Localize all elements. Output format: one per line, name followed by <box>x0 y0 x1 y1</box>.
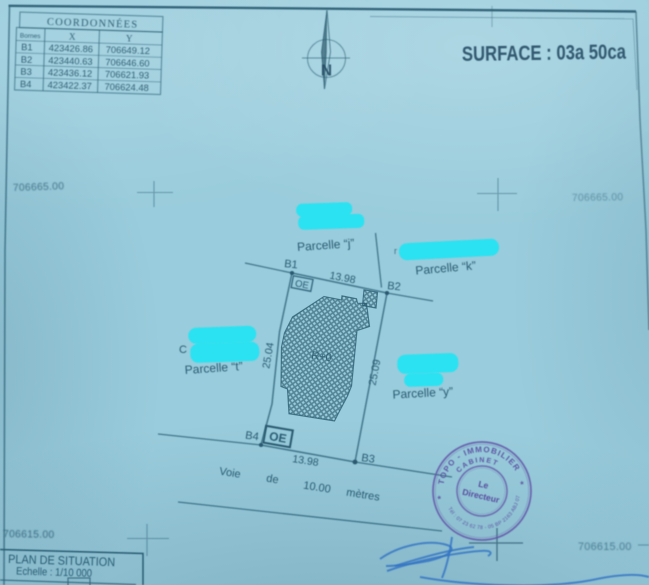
svg-text:706624.48: 706624.48 <box>104 81 149 93</box>
svg-text:706665.00: 706665.00 <box>572 192 624 204</box>
svg-text:Le: Le <box>477 479 489 491</box>
svg-text:Bornes: Bornes <box>20 33 42 41</box>
svg-text:13.98: 13.98 <box>329 270 357 287</box>
svg-text:423440.63: 423440.63 <box>48 54 93 66</box>
svg-text:Echelle : 1/10 000: Echelle : 1/10 000 <box>16 566 92 580</box>
svg-text:de: de <box>265 473 279 487</box>
svg-text:423426.86: 423426.86 <box>49 42 94 54</box>
svg-text:10.00: 10.00 <box>302 480 331 496</box>
svg-text:SURFACE : 03a 50ca: SURFACE : 03a 50ca <box>462 41 627 66</box>
svg-text:Y: Y <box>126 33 133 43</box>
svg-text:B3: B3 <box>20 66 32 77</box>
svg-text:423422.37: 423422.37 <box>47 79 92 91</box>
svg-text:X: X <box>69 32 76 42</box>
svg-text:706615.00: 706615.00 <box>3 529 55 541</box>
svg-text:Parcelle “y”: Parcelle “y” <box>392 384 453 401</box>
svg-text:706649.12: 706649.12 <box>106 44 151 56</box>
svg-text:B2: B2 <box>21 53 33 64</box>
svg-text:B1: B1 <box>21 41 33 52</box>
svg-text:OE: OE <box>268 429 288 446</box>
svg-text:706615.00: 706615.00 <box>578 541 632 553</box>
svg-text:25.04: 25.04 <box>260 341 276 369</box>
svg-text:25.09: 25.09 <box>367 358 384 386</box>
svg-text:Parcelle “j”: Parcelle “j” <box>297 236 355 254</box>
svg-text:Directeur: Directeur <box>461 487 501 505</box>
svg-text:mètres: mètres <box>345 487 381 504</box>
svg-text:706646.60: 706646.60 <box>105 56 150 68</box>
svg-text:C: C <box>179 344 187 356</box>
svg-text:*: * <box>437 494 443 505</box>
svg-text:OE: OE <box>294 278 310 291</box>
svg-text:706665.00: 706665.00 <box>13 181 65 194</box>
svg-text:423436.12: 423436.12 <box>48 67 93 79</box>
svg-text:B1: B1 <box>284 258 299 271</box>
svg-text:N: N <box>321 63 332 80</box>
svg-text:Voie: Voie <box>218 466 241 481</box>
svg-text:B4: B4 <box>20 78 32 89</box>
svg-text:706621.93: 706621.93 <box>105 68 150 80</box>
svg-text:B4: B4 <box>245 430 260 444</box>
svg-text:*: * <box>520 479 526 490</box>
svg-text:Parcelle “k”: Parcelle “k” <box>415 258 477 277</box>
svg-text:B3: B3 <box>361 452 376 466</box>
svg-text:r: r <box>394 246 397 256</box>
svg-text:B2: B2 <box>387 280 402 293</box>
